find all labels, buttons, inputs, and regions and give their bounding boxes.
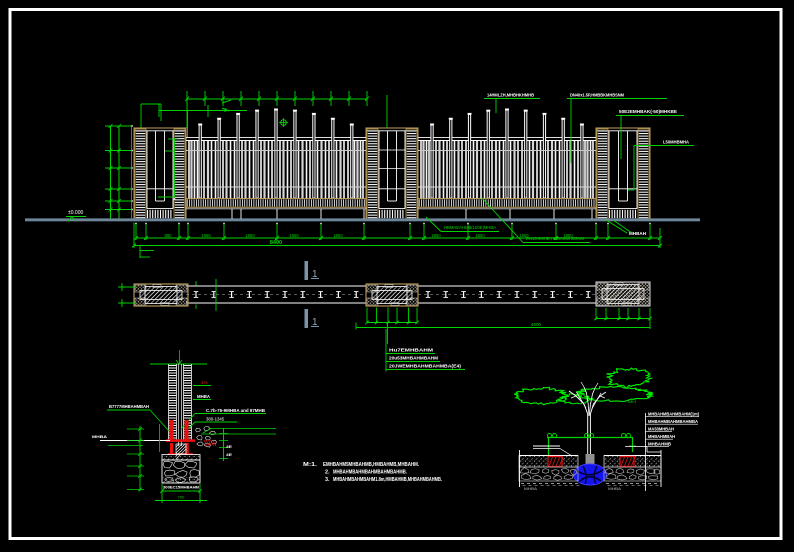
svg-text:MHBAHMBAHMBAHMBAHMBAHMB.: MHBAHMBAHMBAHMBAHMBAHMB. [333,470,408,476]
svg-text:700: 700 [178,495,185,500]
svg-text:50E2EMHBAK(-50)MHKBE: 50E2EMHBAK(-50)MHKBE [619,109,677,114]
svg-text:MHBA: MHBA [524,487,538,491]
svg-text:MH: MH [628,399,636,404]
svg-text:4E: 4E [226,445,233,449]
svg-text:MHBA: MHBA [608,487,622,491]
svg-text:MA50MHBAH: MA50MHBAH [648,427,674,432]
svg-text:EMHBAHM5MHBAHMB,HMBAHMB,MHBAHM: EMHBAHM5MHBAHMB,HMBAHMB,MHBAHM. [323,462,420,468]
svg-text:300EC15MHBAHM: 300EC15MHBAHM [163,485,200,490]
svg-text:1850: 1850 [475,233,485,238]
svg-text:14HMLZH,MHBHKHMHB: 14HMLZH,MHBHKHMHB [487,93,535,98]
svg-text:L50MHBMHA: L50MHBMHA [663,140,690,145]
svg-text:20JWEMHBAHMBAHMBA(E4): 20JWEMHBAHMBAHMBA(E4) [389,364,461,370]
svg-text:1850: 1850 [201,233,211,238]
svg-text:MHBAHMBAH: MHBAHMBAH [648,434,675,439]
svg-text:MHBAH: MHBAH [629,231,646,236]
svg-text:1850: 1850 [333,233,343,238]
svg-text:380-1345: 380-1345 [206,417,225,422]
svg-text:MHBAHMBAHMBAHM1.8m,HMBAHMB,MHB: MHBAHMBAHMBAHM1.8m,HMBAHMB,MHBAHMBAHMB. [333,477,442,483]
svg-text:DN15-2MHB,HMBAKMHBSNM: DN15-2MHB,HMBAKMHBSNM [526,236,584,241]
svg-text:MHBA: MHBA [197,394,211,399]
svg-text:3: 3 [224,108,227,114]
svg-text:C.7b-75-9MHBA and 87MHB: C.7b-75-9MHBA and 87MHB [206,408,265,413]
svg-text:4600: 4600 [531,322,542,327]
svg-text:M:1.: M:1. [303,462,318,468]
svg-text:1850: 1850 [245,233,255,238]
svg-text:Hu7EMHBAHM: Hu7EMHBAHM [389,348,433,354]
svg-text:MHBAHMB: MHBAHMB [648,442,671,447]
svg-text:2.: 2. [325,470,330,476]
svg-text:±0.000: ±0.000 [68,210,83,216]
svg-text:MHBAHMBAHMBAHM(1m): MHBAHMBAHMBAHM(1m) [648,412,700,417]
svg-text:B7777MHBAHMBAH: B7777MHBAHMBAH [109,404,149,409]
svg-text:3.: 3. [325,477,330,483]
svg-text:1850: 1850 [431,233,441,238]
svg-text:880: 880 [165,233,173,238]
svg-text:8400: 8400 [270,240,282,246]
svg-text:HBMHEAHMB(100E)MHBA: HBMHEAHMB(100E)MHBA [444,225,496,230]
svg-text:DN40x1.5P,HMBBKMHBSNM: DN40x1.5P,HMBBKMHBSNM [570,93,624,98]
svg-text:MHBAHMBAHMBAHMBA: MHBAHMBAHMBAHMBA [648,419,698,424]
svg-text:1850: 1850 [289,233,299,238]
svg-text:1%: 1% [201,380,209,386]
svg-text:MHBA: MHBA [92,434,107,439]
svg-text:20u53MHBAHMBAHM: 20u53MHBAHMBAHM [389,356,438,362]
svg-text:4E: 4E [226,453,233,457]
